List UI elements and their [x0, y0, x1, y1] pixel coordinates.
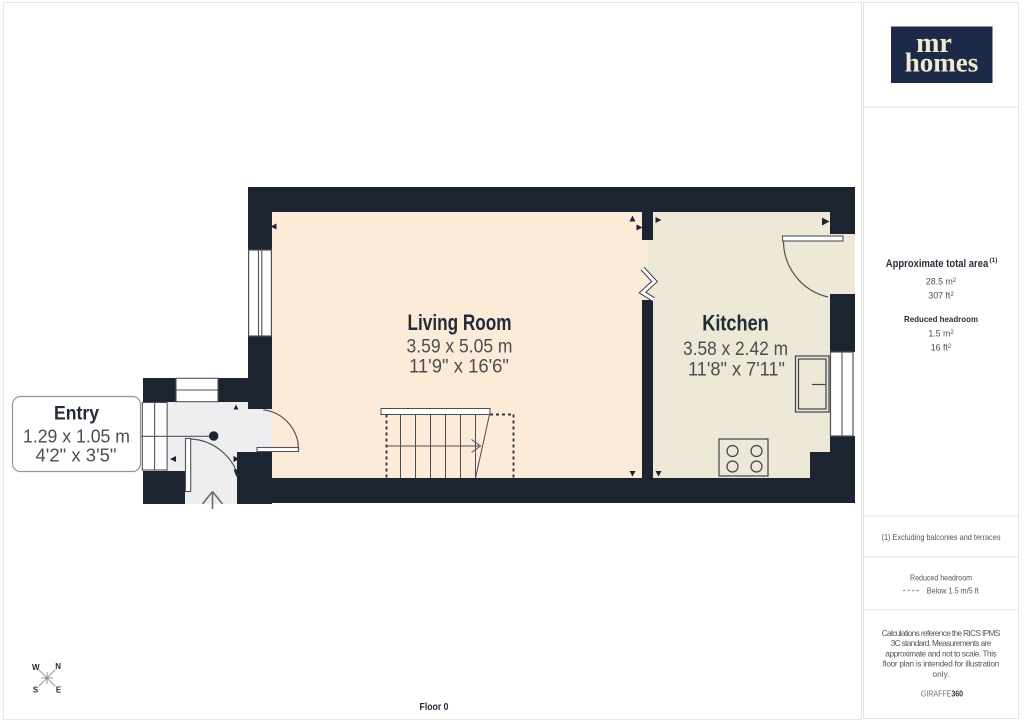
svg-text:GIRAFFE360: GIRAFFE360 [921, 690, 964, 699]
svg-text:3.59 x 5.05 m: 3.59 x 5.05 m [407, 337, 513, 358]
svg-text:4'2" x 3'5": 4'2" x 3'5" [36, 446, 117, 466]
svg-text:approximate and not to scale.: approximate and not to scale. This [885, 649, 996, 658]
svg-text:Kitchen: Kitchen [702, 311, 769, 336]
svg-text:11'8" x 7'11": 11'8" x 7'11" [688, 360, 785, 381]
svg-text:(1) Excluding balconies and te: (1) Excluding balconies and terraces [882, 533, 1001, 542]
svg-text:Living Room: Living Room [408, 310, 512, 335]
svg-text:floor plan is intended for ill: floor plan is intended for illustration [883, 660, 1000, 669]
svg-text:Reduced headroom: Reduced headroom [910, 574, 972, 583]
svg-text:homes: homes [905, 48, 979, 78]
svg-text:3C standard. Measurements are: 3C standard. Measurements are [891, 639, 992, 648]
svg-text:11'9" x 16'6": 11'9" x 16'6" [409, 357, 509, 378]
svg-text:S: S [33, 686, 39, 695]
svg-text:Floor 0: Floor 0 [420, 702, 449, 713]
svg-text:Reduced headroom: Reduced headroom [904, 314, 978, 324]
svg-text:Calculations reference the RIC: Calculations reference the RICS IPMS [882, 629, 1001, 638]
svg-text:only.: only. [932, 670, 949, 679]
svg-text:(1): (1) [990, 257, 998, 264]
svg-text:W: W [32, 663, 40, 672]
svg-text:E: E [56, 686, 62, 695]
svg-text:Below 1.5 m/5 ft: Below 1.5 m/5 ft [927, 587, 980, 596]
svg-text:Entry: Entry [54, 403, 99, 425]
svg-text:1.29 x 1.05 m: 1.29 x 1.05 m [23, 427, 130, 447]
svg-text:N: N [55, 662, 61, 671]
svg-text:28.5 m2: 28.5 m2 [926, 277, 957, 287]
svg-text:3.58 x 2.42 m: 3.58 x 2.42 m [683, 339, 788, 360]
svg-text:Approximate total area: Approximate total area [886, 258, 989, 270]
